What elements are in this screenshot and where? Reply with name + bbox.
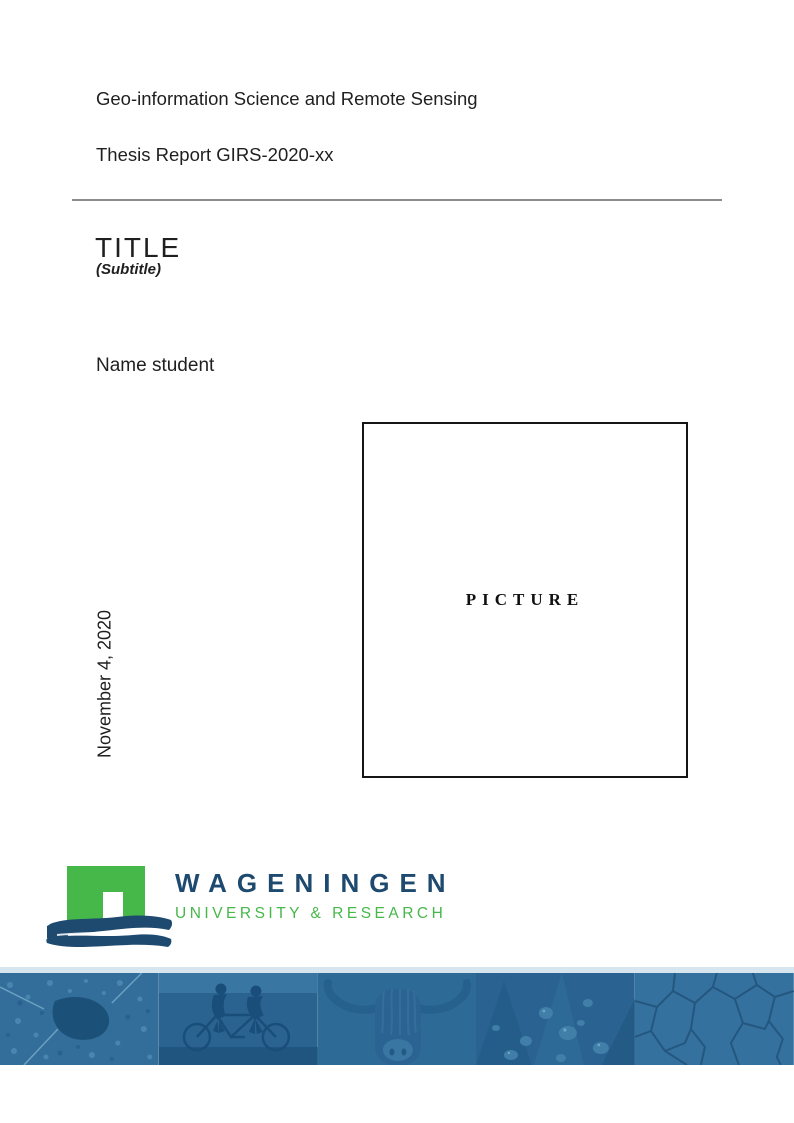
wur-gate-icon (45, 864, 173, 956)
thesis-title: TITLE (95, 232, 181, 264)
author-name: Name student (96, 355, 214, 377)
logo-tagline: UNIVERSITY & RESEARCH (175, 906, 456, 922)
report-id: Thesis Report GIRS-2020-xx (96, 144, 334, 166)
photo-banner (0, 973, 794, 1065)
date-text: November 4, 2020 (95, 610, 116, 758)
logo-wordmark: WAGENINGEN (175, 870, 456, 896)
wur-logo: WAGENINGEN UNIVERSITY & RESEARCH (45, 864, 485, 959)
picture-placeholder-label: PICTURE (466, 590, 585, 610)
cow-muzzle (383, 1039, 413, 1061)
gate-arch-shape (67, 866, 145, 921)
banner-tile-highland-cow-image (318, 973, 477, 1065)
banner-tile-cracked-earth-image (635, 973, 794, 1065)
picture-placeholder-box: PICTURE (362, 422, 688, 778)
thesis-cover-page: Geo-information Science and Remote Sensi… (0, 0, 794, 1123)
banner-tile-tandem-cyclists-image (159, 973, 318, 1065)
program-name: Geo-information Science and Remote Sensi… (96, 88, 478, 110)
date-rotated: November 4, 2020 (90, 598, 120, 770)
thesis-subtitle: (Subtitle) (96, 261, 161, 278)
banner-tile-petals-droplets-image (476, 973, 635, 1065)
banner-tile-aerial-landscape-image (0, 973, 159, 1065)
horizontal-rule (72, 199, 722, 201)
